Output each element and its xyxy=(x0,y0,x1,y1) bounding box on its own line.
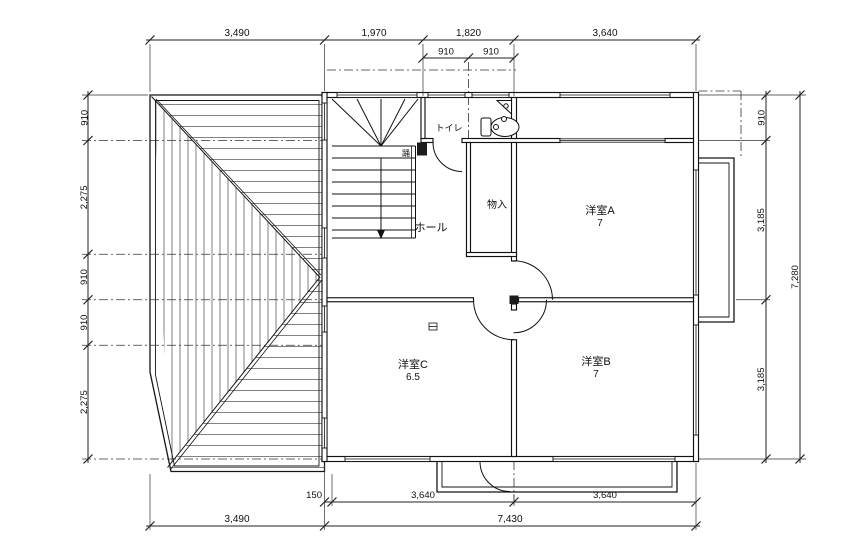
dim-left-1: 910 xyxy=(79,110,90,126)
floor-plan-drawing: 3,490 1,970 1,820 3,640 910 910 910 2,27… xyxy=(0,0,861,543)
dim-top-4: 3,640 xyxy=(592,28,617,39)
wall-post xyxy=(417,143,427,156)
label-room-a-size: 7 xyxy=(597,218,603,229)
window-top-closet-a xyxy=(560,93,670,98)
staircase xyxy=(332,99,427,239)
window-bottom-room-c xyxy=(345,457,430,462)
window-left-1 xyxy=(322,103,327,140)
door-swing-arc-toilet xyxy=(433,143,462,172)
dim-left-4: 910 xyxy=(79,315,90,331)
floorplan-canvas: 3,490 1,970 1,820 3,640 910 910 910 2,27… xyxy=(0,0,861,543)
door-post xyxy=(510,296,519,305)
dim-bottom-1: 3,490 xyxy=(224,514,249,525)
label-storage: 物入 xyxy=(487,198,507,211)
dim-left-3: 910 xyxy=(79,269,90,285)
label-room-c: 洋室C xyxy=(398,357,428,371)
dim-bottom-sub-1: 150 xyxy=(306,490,322,501)
label-toilet: トイレ xyxy=(435,123,462,133)
door-arcs xyxy=(433,143,553,340)
dim-right-total: 7,280 xyxy=(790,265,801,289)
label-hall: ホール xyxy=(415,221,448,234)
window-right-room-b xyxy=(694,325,699,435)
interior-walls xyxy=(327,98,694,457)
label-room-b-size: 7 xyxy=(593,369,599,380)
window-top-stairs xyxy=(337,93,417,98)
window-top-toilet-right xyxy=(472,93,509,98)
dim-bottom-sub-2: 3,640 xyxy=(411,490,435,501)
window-left-2 xyxy=(322,228,327,258)
dim-top-sub-1: 910 xyxy=(438,47,454,58)
label-room-c-size: 6.5 xyxy=(406,372,420,383)
sliding-door-closet-a xyxy=(560,139,665,142)
hip-roof-area xyxy=(150,95,325,472)
label-room-a: 洋室A xyxy=(585,203,615,217)
dim-top-sub-2: 910 xyxy=(483,47,499,58)
window-right-balcony-door xyxy=(694,170,699,295)
dim-top-2: 1,970 xyxy=(361,28,386,39)
dim-right-1: 910 xyxy=(756,110,767,126)
dim-right-2: 3,185 xyxy=(756,208,767,232)
balcony-bottom xyxy=(437,462,677,493)
toilet-tank xyxy=(481,118,491,136)
window-left-4 xyxy=(322,418,327,448)
door-swing-arc-room-b xyxy=(514,300,547,333)
dim-bottom-sub-3: 3,640 xyxy=(593,490,617,501)
balcony-right xyxy=(699,158,735,322)
outer-walls xyxy=(322,93,699,462)
dim-bottom-2: 7,430 xyxy=(497,514,522,525)
label-stair-landing: 踊 xyxy=(402,149,410,158)
door-swing-arc-room-a xyxy=(514,261,553,300)
dim-top-3: 1,820 xyxy=(456,28,481,39)
dim-top-1: 3,490 xyxy=(224,28,249,39)
label-room-b: 洋室B xyxy=(581,354,610,368)
window-left-3 xyxy=(322,306,327,332)
dim-right-3: 3,185 xyxy=(756,368,767,392)
window-bottom-room-b xyxy=(553,457,675,462)
dim-left-5: 2,275 xyxy=(79,390,90,414)
outlet-symbol xyxy=(429,323,437,330)
dim-left-2: 2,275 xyxy=(79,186,90,210)
windows xyxy=(322,93,699,462)
window-top-toilet-left xyxy=(428,93,465,98)
door-swing-arc-room-c xyxy=(474,300,514,340)
